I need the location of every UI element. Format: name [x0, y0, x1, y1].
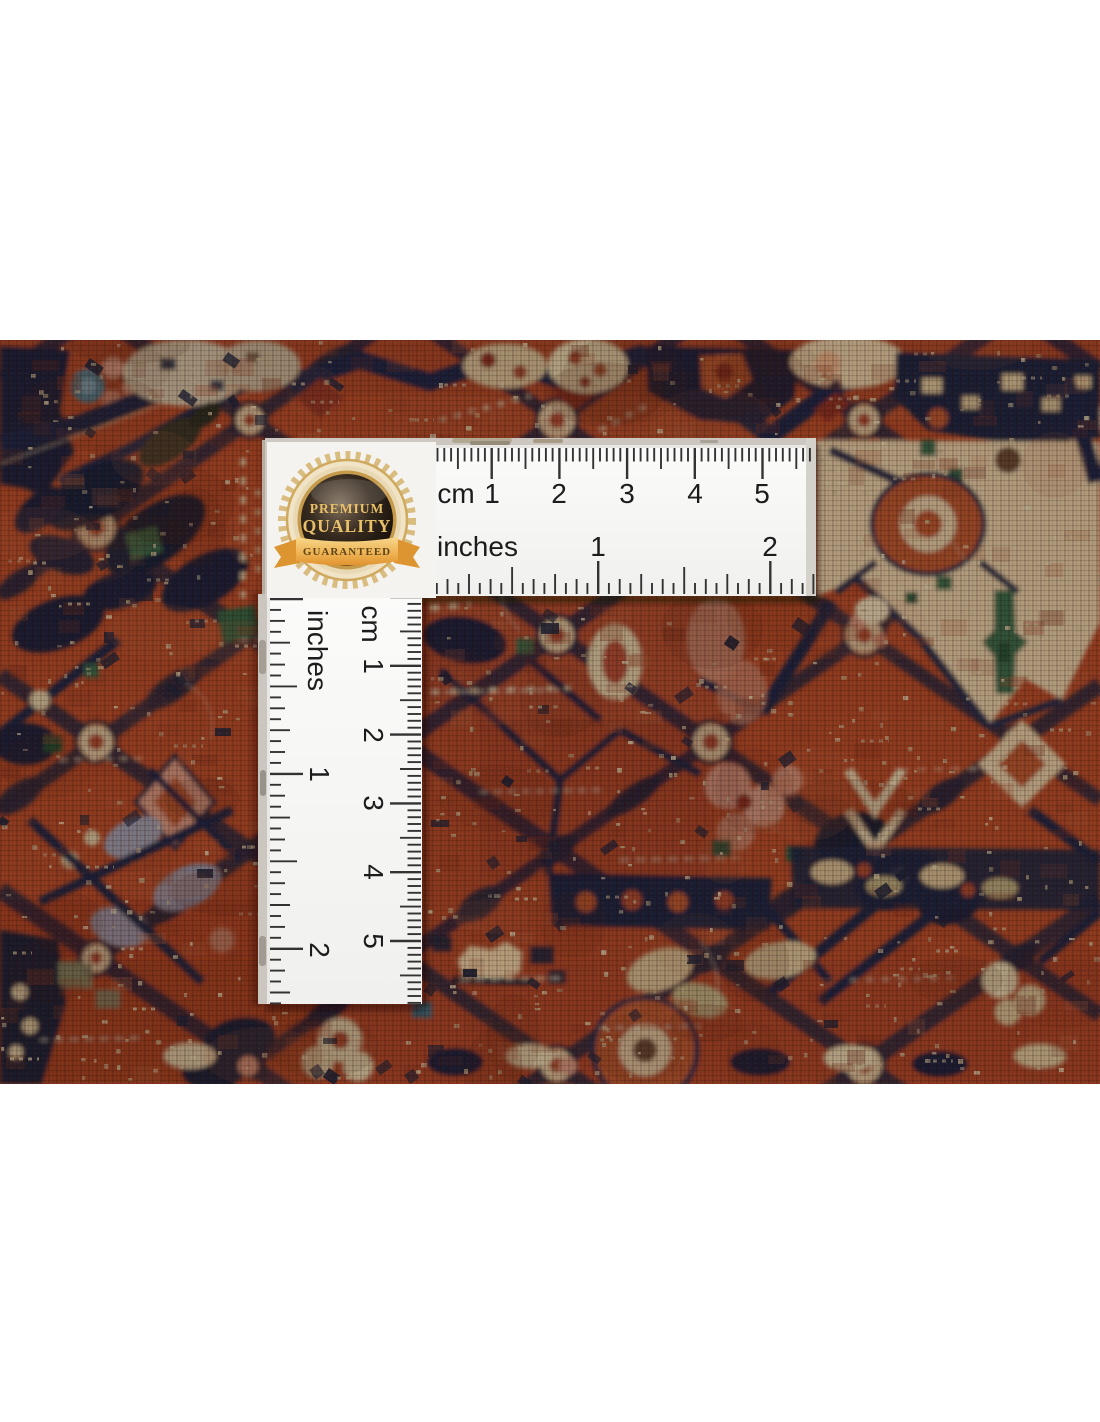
- svg-text:2: 2: [358, 727, 389, 743]
- svg-text:4: 4: [358, 864, 389, 880]
- svg-text:3: 3: [358, 795, 389, 811]
- svg-text:2: 2: [551, 478, 567, 509]
- svg-text:5: 5: [358, 933, 389, 949]
- svg-text:1: 1: [590, 531, 606, 562]
- svg-text:QUALITY: QUALITY: [303, 516, 392, 536]
- svg-text:5: 5: [754, 478, 770, 509]
- svg-text:PREMIUM: PREMIUM: [310, 501, 385, 516]
- svg-text:2: 2: [762, 531, 778, 562]
- svg-text:1: 1: [484, 478, 500, 509]
- svg-text:2: 2: [304, 942, 335, 958]
- svg-text:inches: inches: [437, 531, 518, 562]
- svg-text:inches: inches: [302, 610, 333, 691]
- svg-text:GUARANTEED: GUARANTEED: [303, 546, 391, 558]
- svg-text:cm: cm: [356, 605, 387, 642]
- svg-text:1: 1: [358, 658, 389, 674]
- svg-text:1: 1: [304, 766, 335, 782]
- svg-text:4: 4: [687, 478, 703, 509]
- svg-text:cm: cm: [437, 478, 474, 509]
- svg-text:3: 3: [619, 478, 635, 509]
